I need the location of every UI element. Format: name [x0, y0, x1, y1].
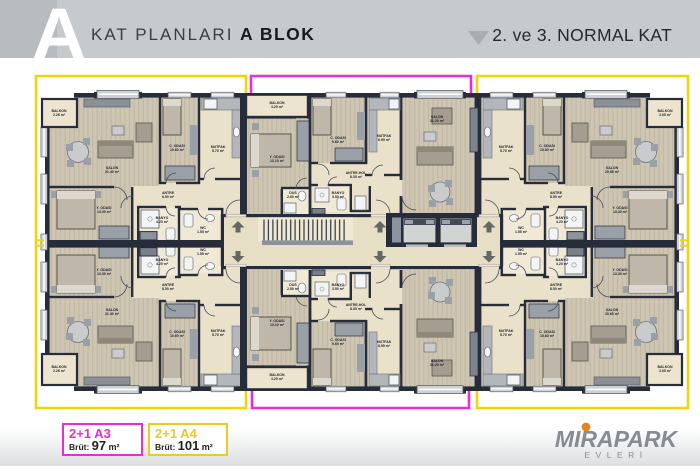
svg-text:MUTFAK5.70 m²: MUTFAK5.70 m²	[211, 329, 226, 337]
svg-text:A: A	[32, 0, 86, 74]
svg-text:BALKON2.26 m²: BALKON2.26 m²	[52, 109, 67, 117]
svg-text:BALKON3.05 m²: BALKON3.05 m²	[658, 109, 673, 117]
svg-text:C. ODASI10.60 m²: C. ODASI10.60 m²	[539, 144, 555, 152]
svg-text:ANTRE8.50 m²: ANTRE8.50 m²	[550, 191, 563, 199]
svg-text:C. ODASI9.60 m²: C. ODASI9.60 m²	[330, 338, 346, 346]
svg-text:SALON21.20 m²: SALON21.20 m²	[430, 115, 445, 123]
svg-text:Y. ODASI13.10 m²: Y. ODASI13.10 m²	[270, 155, 285, 163]
svg-text:C. ODASI10.60 m²: C. ODASI10.60 m²	[539, 330, 555, 338]
svg-text:MUTFAK5.70 m²: MUTFAK5.70 m²	[499, 329, 514, 337]
svg-text:SALON21.20 m²: SALON21.20 m²	[430, 359, 445, 367]
svg-text:A BLOK: A BLOK	[240, 24, 315, 44]
svg-text:BALKON3.20 m²: BALKON3.20 m²	[270, 373, 285, 381]
svg-text:C. ODASI10.60 m²: C. ODASI10.60 m²	[169, 144, 185, 152]
svg-text:2. ve 3. NORMAL KAT: 2. ve 3. NORMAL KAT	[492, 25, 672, 45]
svg-text:BANYO3.50 m²: BANYO3.50 m²	[332, 283, 345, 291]
svg-text:BANYO3.50 m²: BANYO3.50 m²	[332, 191, 345, 199]
svg-text:ANTRE8.50 m²: ANTRE8.50 m²	[550, 283, 563, 291]
svg-text:BANYO4.20 m²: BANYO4.20 m²	[556, 216, 569, 224]
svg-text:Y. ODASI13.10 m²: Y. ODASI13.10 m²	[270, 319, 285, 327]
svg-text:KAT PLANLARI: KAT PLANLARI	[91, 25, 233, 44]
svg-text:MUTFAK6.95 m²: MUTFAK6.95 m²	[377, 340, 392, 348]
svg-text:C. ODASI10.60 m²: C. ODASI10.60 m²	[169, 330, 185, 338]
svg-text:MUTFAK5.70 m²: MUTFAK5.70 m²	[211, 145, 226, 153]
svg-text:BANYO4.20 m²: BANYO4.20 m²	[156, 258, 169, 266]
svg-text:SALON21.40 m²: SALON21.40 m²	[105, 166, 120, 174]
svg-text:Y. ODASI13.30 m²: Y. ODASI13.30 m²	[613, 206, 628, 214]
svg-text:SALON20.65 m²: SALON20.65 m²	[605, 166, 620, 174]
svg-text:EVLERİ: EVLERİ	[584, 450, 647, 460]
svg-text:MIRAPARK: MIRAPARK	[555, 426, 679, 452]
svg-text:BANYO4.20 m²: BANYO4.20 m²	[556, 258, 569, 266]
svg-text:Y. ODASI13.30 m²: Y. ODASI13.30 m²	[613, 268, 628, 276]
svg-text:MUTFAK6.95 m²: MUTFAK6.95 m²	[377, 134, 392, 142]
svg-text:MUTFAK5.70 m²: MUTFAK5.70 m²	[499, 145, 514, 153]
svg-text:ANTRE8.50 m²: ANTRE8.50 m²	[162, 283, 175, 291]
svg-text:Y. ODASI13.30 m²: Y. ODASI13.30 m²	[97, 268, 112, 276]
svg-text:SALON21.40 m²: SALON21.40 m²	[105, 308, 120, 316]
svg-text:Y. ODASI13.30 m²: Y. ODASI13.30 m²	[97, 206, 112, 214]
svg-text:SALON20.65 m²: SALON20.65 m²	[605, 308, 620, 316]
svg-text:BALKON3.20 m²: BALKON3.20 m²	[270, 101, 285, 109]
svg-text:ANTRE8.50 m²: ANTRE8.50 m²	[162, 191, 175, 199]
svg-text:BANYO4.20 m²: BANYO4.20 m²	[156, 216, 169, 224]
svg-text:BALKON2.26 m²: BALKON2.26 m²	[52, 365, 67, 373]
svg-text:BALKON3.05 m²: BALKON3.05 m²	[658, 365, 673, 373]
svg-text:C. ODASI9.60 m²: C. ODASI9.60 m²	[330, 136, 346, 144]
